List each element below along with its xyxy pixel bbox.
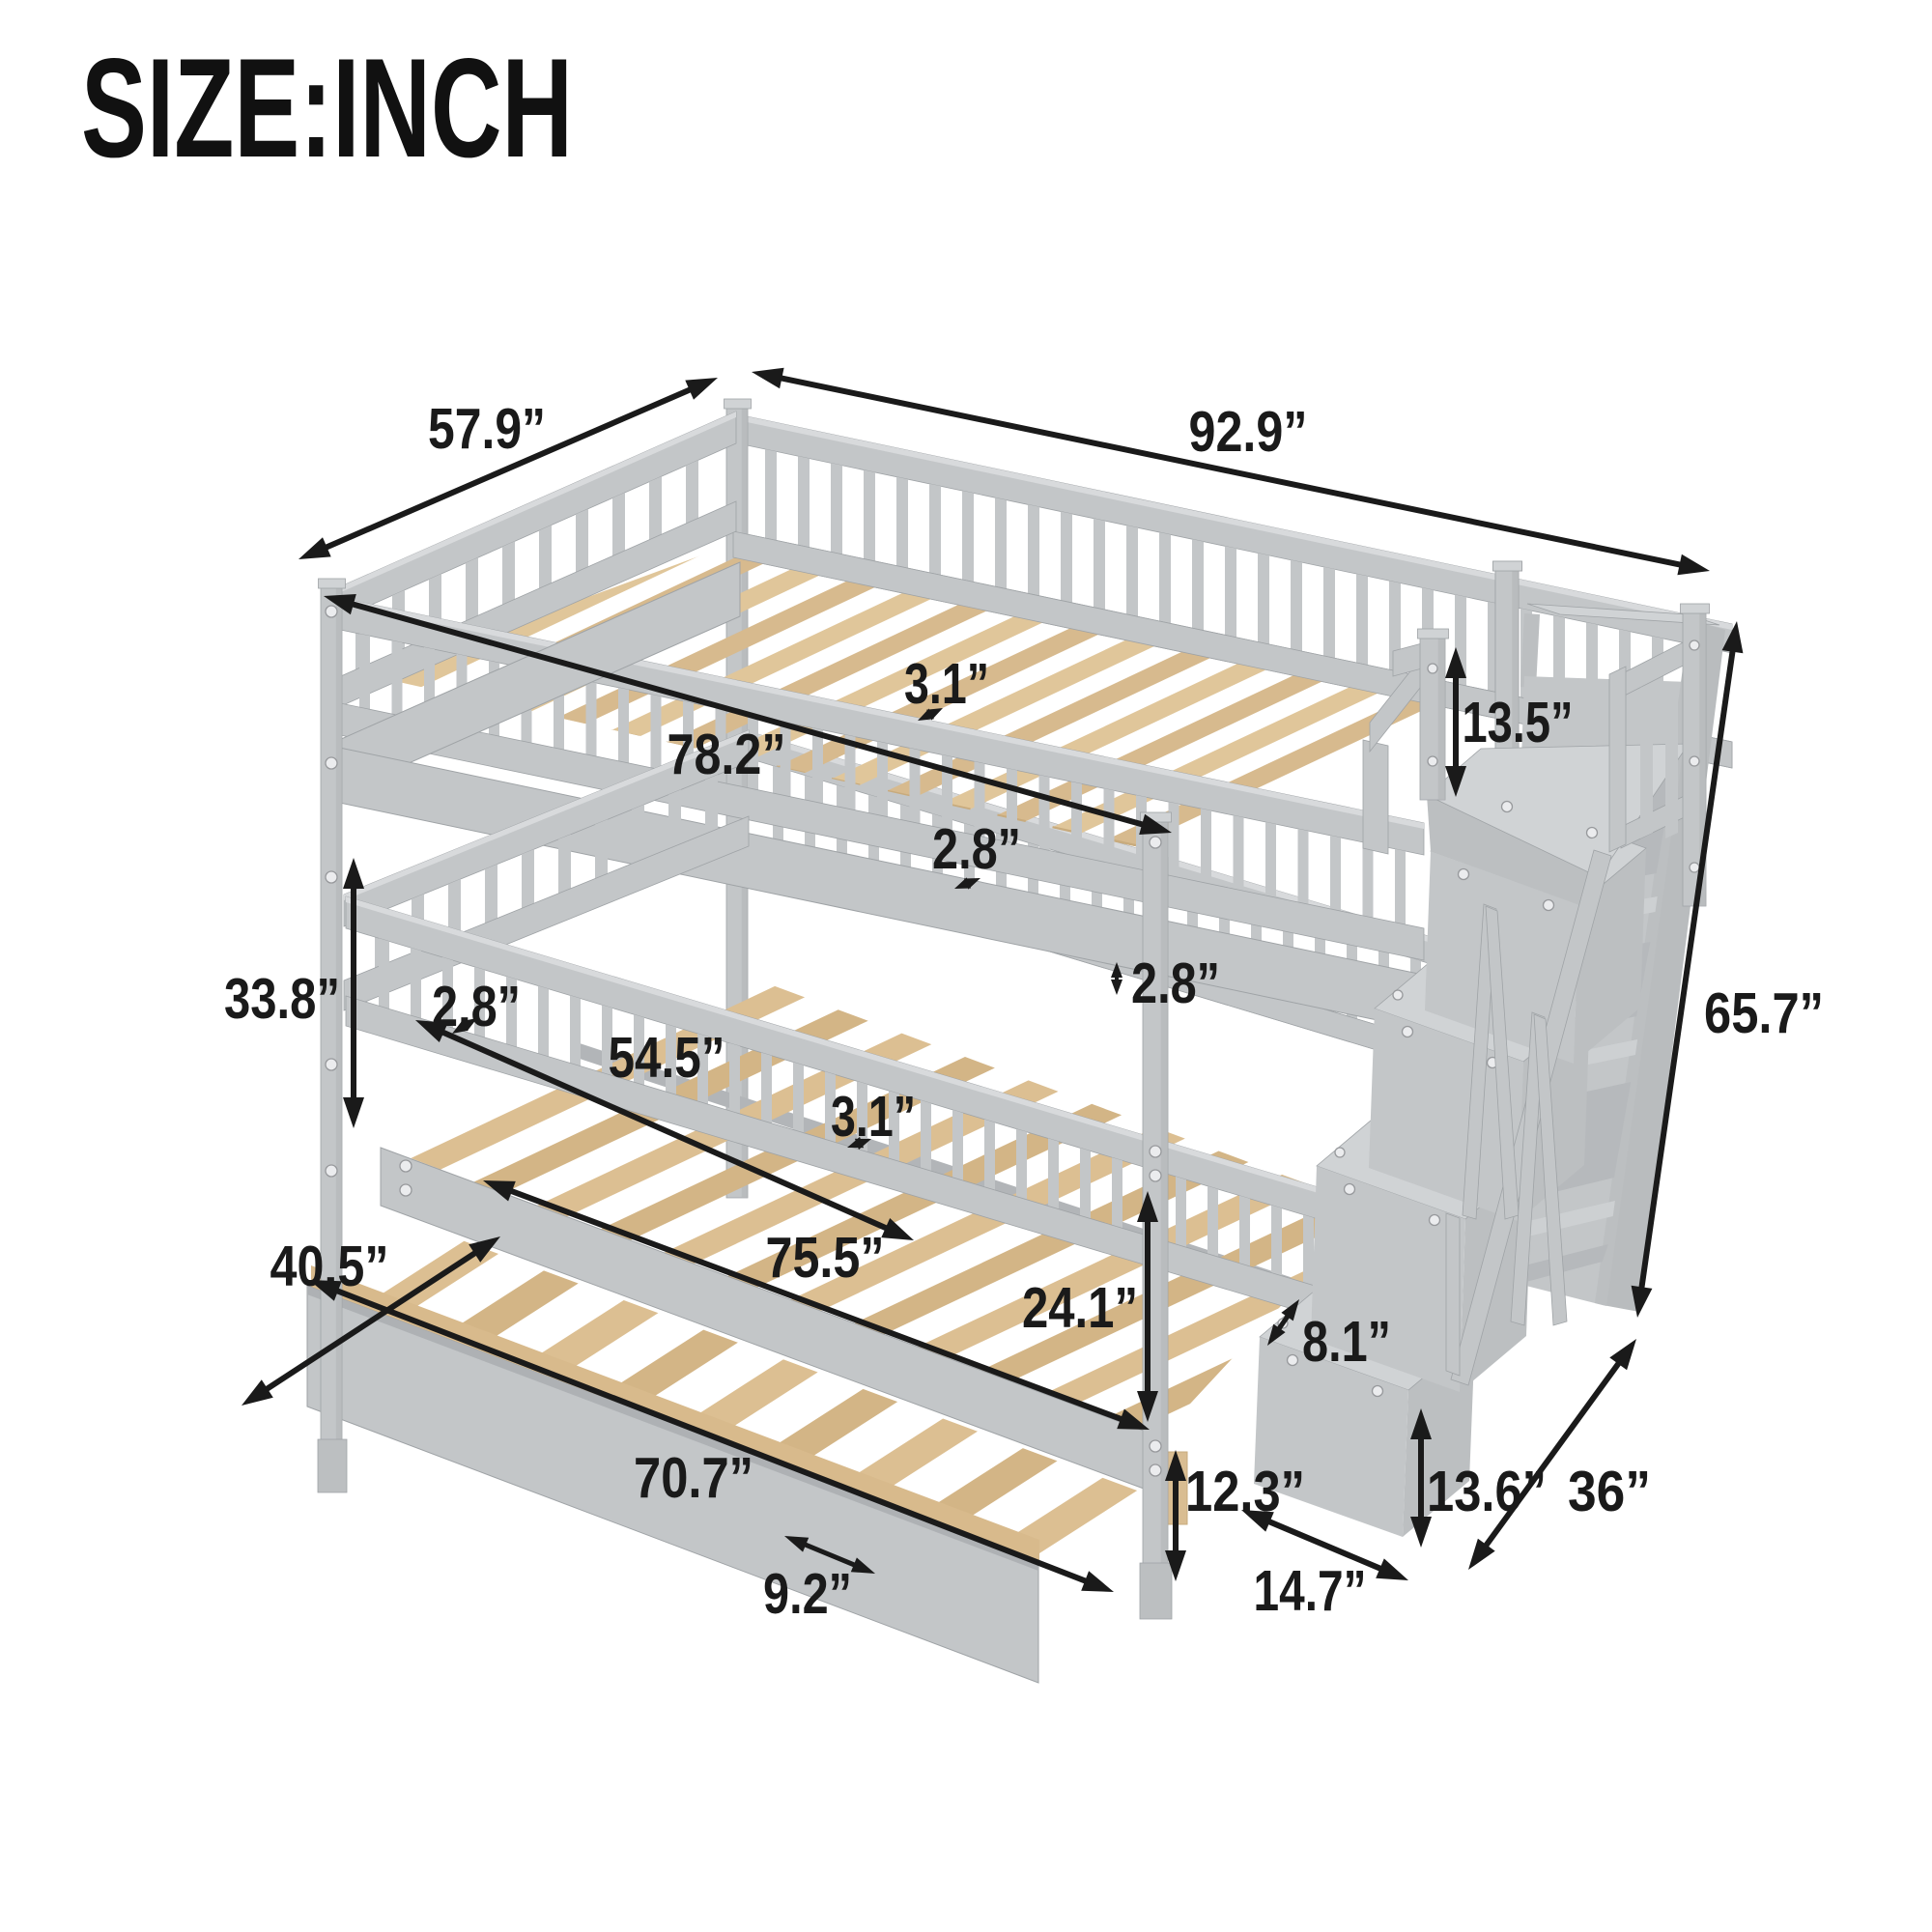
svg-text:78.2”: 78.2” [668,723,786,786]
svg-text:33.8”: 33.8” [224,967,340,1031]
svg-text:70.7”: 70.7” [634,1446,753,1510]
svg-text:13.5”: 13.5” [1463,691,1574,754]
svg-text:2.8”: 2.8” [1131,952,1220,1015]
svg-text:3.1”: 3.1” [831,1085,916,1149]
svg-text:8.1”: 8.1” [1302,1310,1391,1374]
svg-text:92.9”: 92.9” [1189,400,1308,464]
svg-text:9.2”: 9.2” [763,1562,852,1626]
svg-text:2.8”: 2.8” [932,817,1021,881]
svg-text:75.5”: 75.5” [766,1226,885,1290]
svg-text:12.3”: 12.3” [1185,1460,1305,1523]
svg-text:57.9”: 57.9” [428,397,546,461]
svg-text:24.1”: 24.1” [1022,1276,1138,1340]
svg-text:SIZE:INCH: SIZE:INCH [81,29,573,186]
svg-text:65.7”: 65.7” [1704,981,1824,1045]
svg-text:54.5”: 54.5” [609,1026,725,1090]
svg-text:36”: 36” [1568,1460,1651,1523]
svg-text:14.7”: 14.7” [1254,1559,1367,1623]
svg-text:3.1”: 3.1” [904,652,989,716]
